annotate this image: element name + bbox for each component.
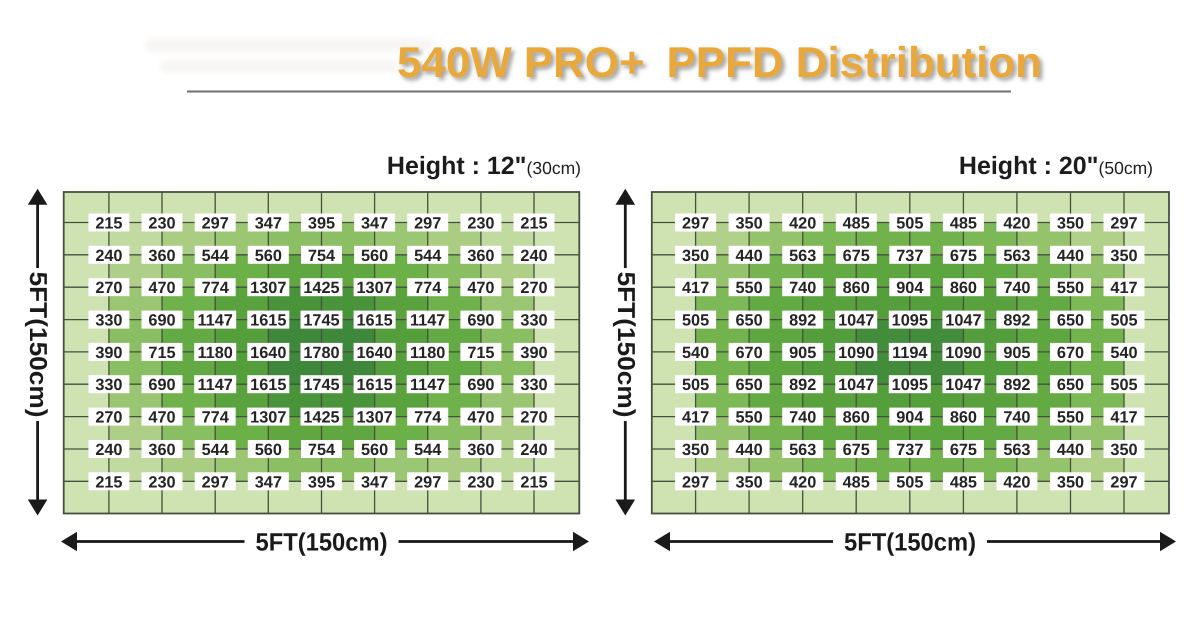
svg-text:754: 754 <box>308 441 335 459</box>
svg-text:544: 544 <box>202 441 229 459</box>
svg-text:350: 350 <box>682 441 709 459</box>
svg-text:505: 505 <box>896 215 923 233</box>
svg-text:485: 485 <box>950 215 977 233</box>
svg-text:905: 905 <box>789 344 816 362</box>
svg-text:297: 297 <box>414 473 441 491</box>
svg-text:230: 230 <box>148 473 175 491</box>
svg-text:650: 650 <box>736 312 763 330</box>
svg-text:650: 650 <box>736 376 763 394</box>
svg-text:560: 560 <box>361 441 388 459</box>
svg-text:650: 650 <box>1057 376 1084 394</box>
svg-text:540: 540 <box>1110 344 1137 362</box>
svg-text:440: 440 <box>1057 247 1084 265</box>
svg-text:417: 417 <box>1110 409 1137 427</box>
svg-text:560: 560 <box>361 247 388 265</box>
svg-text:563: 563 <box>1003 441 1030 459</box>
svg-text:737: 737 <box>896 441 923 459</box>
svg-text:350: 350 <box>682 247 709 265</box>
svg-text:1307: 1307 <box>356 409 392 427</box>
svg-text:1047: 1047 <box>945 376 981 394</box>
svg-text:360: 360 <box>467 441 494 459</box>
svg-text:774: 774 <box>202 409 229 427</box>
svg-text:420: 420 <box>789 215 816 233</box>
svg-text:892: 892 <box>1003 312 1030 330</box>
svg-text:297: 297 <box>682 215 709 233</box>
svg-text:240: 240 <box>95 441 122 459</box>
svg-text:330: 330 <box>95 376 122 394</box>
svg-text:774: 774 <box>414 279 441 297</box>
svg-text:690: 690 <box>467 312 494 330</box>
svg-text:1147: 1147 <box>410 376 445 394</box>
svg-text:740: 740 <box>1003 279 1030 297</box>
svg-text:350: 350 <box>1110 441 1137 459</box>
svg-text:544: 544 <box>202 247 229 265</box>
svg-text:230: 230 <box>467 473 494 491</box>
svg-text:1095: 1095 <box>892 312 928 330</box>
svg-text:1615: 1615 <box>250 312 286 330</box>
svg-text:1745: 1745 <box>303 376 339 394</box>
svg-text:330: 330 <box>520 312 547 330</box>
svg-text:330: 330 <box>520 376 547 394</box>
svg-text:563: 563 <box>789 441 816 459</box>
svg-text:297: 297 <box>414 215 441 233</box>
svg-text:1307: 1307 <box>250 409 286 427</box>
svg-text:550: 550 <box>1057 279 1084 297</box>
svg-text:892: 892 <box>789 312 816 330</box>
svg-text:1090: 1090 <box>945 344 981 362</box>
svg-text:417: 417 <box>1110 279 1137 297</box>
svg-text:505: 505 <box>896 473 923 491</box>
svg-text:1780: 1780 <box>303 344 339 362</box>
svg-text:240: 240 <box>520 247 547 265</box>
svg-text:470: 470 <box>467 409 494 427</box>
svg-text:1745: 1745 <box>303 312 339 330</box>
svg-text:675: 675 <box>843 247 870 265</box>
svg-text:5FT(150cm): 5FT(150cm) <box>24 272 51 418</box>
svg-text:470: 470 <box>148 409 175 427</box>
svg-text:470: 470 <box>467 279 494 297</box>
svg-text:550: 550 <box>1057 409 1084 427</box>
svg-text:350: 350 <box>1057 215 1084 233</box>
svg-text:350: 350 <box>1057 473 1084 491</box>
svg-text:675: 675 <box>843 441 870 459</box>
svg-text:1147: 1147 <box>198 376 233 394</box>
svg-text:550: 550 <box>736 409 763 427</box>
svg-text:270: 270 <box>520 279 547 297</box>
svg-text:347: 347 <box>255 215 282 233</box>
svg-text:347: 347 <box>255 473 282 491</box>
svg-text:297: 297 <box>202 473 229 491</box>
svg-text:240: 240 <box>520 441 547 459</box>
svg-text:860: 860 <box>950 409 977 427</box>
svg-text:675: 675 <box>950 441 977 459</box>
svg-text:670: 670 <box>736 344 763 362</box>
svg-text:215: 215 <box>520 215 547 233</box>
svg-text:1615: 1615 <box>356 312 392 330</box>
svg-text:540W PRO+ PPFD Distribution: 540W PRO+ PPFD Distribution <box>397 39 1042 87</box>
svg-text:740: 740 <box>1003 409 1030 427</box>
svg-text:1194: 1194 <box>892 344 927 362</box>
svg-text:1147: 1147 <box>198 312 233 330</box>
svg-text:395: 395 <box>308 473 335 491</box>
svg-text:860: 860 <box>843 409 870 427</box>
svg-text:740: 740 <box>789 409 816 427</box>
svg-text:215: 215 <box>520 473 547 491</box>
svg-text:395: 395 <box>308 215 335 233</box>
svg-text:1147: 1147 <box>410 312 445 330</box>
svg-text:390: 390 <box>520 344 547 362</box>
svg-text:215: 215 <box>95 473 122 491</box>
svg-text:360: 360 <box>148 441 175 459</box>
svg-text:737: 737 <box>896 247 923 265</box>
svg-text:390: 390 <box>95 344 122 362</box>
svg-text:675: 675 <box>950 247 977 265</box>
svg-text:1425: 1425 <box>303 279 339 297</box>
svg-text:420: 420 <box>1003 215 1030 233</box>
svg-text:485: 485 <box>843 473 870 491</box>
svg-text:350: 350 <box>1110 247 1137 265</box>
svg-text:350: 350 <box>736 215 763 233</box>
svg-text:774: 774 <box>202 279 229 297</box>
svg-text:715: 715 <box>467 344 494 362</box>
svg-text:417: 417 <box>682 409 709 427</box>
svg-text:505: 505 <box>1110 376 1137 394</box>
svg-text:330: 330 <box>95 312 122 330</box>
svg-text:297: 297 <box>202 215 229 233</box>
svg-text:297: 297 <box>1110 473 1137 491</box>
svg-text:485: 485 <box>950 473 977 491</box>
svg-text:1640: 1640 <box>356 344 392 362</box>
svg-text:440: 440 <box>736 441 763 459</box>
svg-text:270: 270 <box>95 409 122 427</box>
svg-text:1425: 1425 <box>303 409 339 427</box>
svg-text:1180: 1180 <box>410 344 445 362</box>
svg-text:297: 297 <box>682 473 709 491</box>
svg-text:5FT(150cm): 5FT(150cm) <box>844 529 976 557</box>
svg-text:715: 715 <box>148 344 175 362</box>
svg-text:563: 563 <box>1003 247 1030 265</box>
svg-text:892: 892 <box>1003 376 1030 394</box>
svg-text:230: 230 <box>467 215 494 233</box>
svg-text:1095: 1095 <box>892 376 928 394</box>
svg-text:860: 860 <box>950 279 977 297</box>
svg-text:240: 240 <box>95 247 122 265</box>
svg-text:670: 670 <box>1057 344 1084 362</box>
svg-text:650: 650 <box>1057 312 1084 330</box>
svg-text:417: 417 <box>682 279 709 297</box>
svg-text:1180: 1180 <box>198 344 233 362</box>
svg-text:485: 485 <box>843 215 870 233</box>
svg-text:904: 904 <box>896 279 923 297</box>
svg-text:904: 904 <box>896 409 923 427</box>
svg-text:470: 470 <box>148 279 175 297</box>
svg-text:1307: 1307 <box>356 279 392 297</box>
svg-text:544: 544 <box>414 247 441 265</box>
svg-text:360: 360 <box>467 247 494 265</box>
svg-text:774: 774 <box>414 409 441 427</box>
svg-text:1640: 1640 <box>250 344 286 362</box>
svg-text:420: 420 <box>1003 473 1030 491</box>
svg-text:860: 860 <box>843 279 870 297</box>
svg-text:1047: 1047 <box>838 376 874 394</box>
svg-text:360: 360 <box>148 247 175 265</box>
svg-text:740: 740 <box>789 279 816 297</box>
svg-text:270: 270 <box>520 409 547 427</box>
svg-text:440: 440 <box>1057 441 1084 459</box>
svg-text:550: 550 <box>736 279 763 297</box>
svg-text:297: 297 <box>1110 215 1137 233</box>
svg-text:270: 270 <box>95 279 122 297</box>
svg-text:754: 754 <box>308 247 335 265</box>
svg-text:420: 420 <box>789 473 816 491</box>
svg-text:560: 560 <box>255 247 282 265</box>
svg-text:690: 690 <box>148 312 175 330</box>
svg-text:1090: 1090 <box>838 344 874 362</box>
svg-text:560: 560 <box>255 441 282 459</box>
svg-text:5FT(150cm): 5FT(150cm) <box>612 272 639 418</box>
svg-text:1047: 1047 <box>945 312 981 330</box>
svg-text:892: 892 <box>789 376 816 394</box>
svg-text:440: 440 <box>736 247 763 265</box>
svg-text:1047: 1047 <box>838 312 874 330</box>
svg-text:540: 540 <box>682 344 709 362</box>
svg-text:690: 690 <box>467 376 494 394</box>
svg-text:690: 690 <box>148 376 175 394</box>
svg-text:347: 347 <box>361 473 388 491</box>
svg-text:347: 347 <box>361 215 388 233</box>
svg-text:905: 905 <box>1003 344 1030 362</box>
svg-text:1615: 1615 <box>356 376 392 394</box>
svg-text:5FT(150cm): 5FT(150cm) <box>256 529 388 557</box>
svg-text:544: 544 <box>414 441 441 459</box>
svg-text:230: 230 <box>148 215 175 233</box>
svg-text:1307: 1307 <box>250 279 286 297</box>
svg-text:350: 350 <box>736 473 763 491</box>
svg-text:505: 505 <box>682 376 709 394</box>
svg-text:505: 505 <box>682 312 709 330</box>
svg-text:563: 563 <box>789 247 816 265</box>
svg-text:505: 505 <box>1110 312 1137 330</box>
svg-text:215: 215 <box>95 215 122 233</box>
svg-text:1615: 1615 <box>250 376 286 394</box>
